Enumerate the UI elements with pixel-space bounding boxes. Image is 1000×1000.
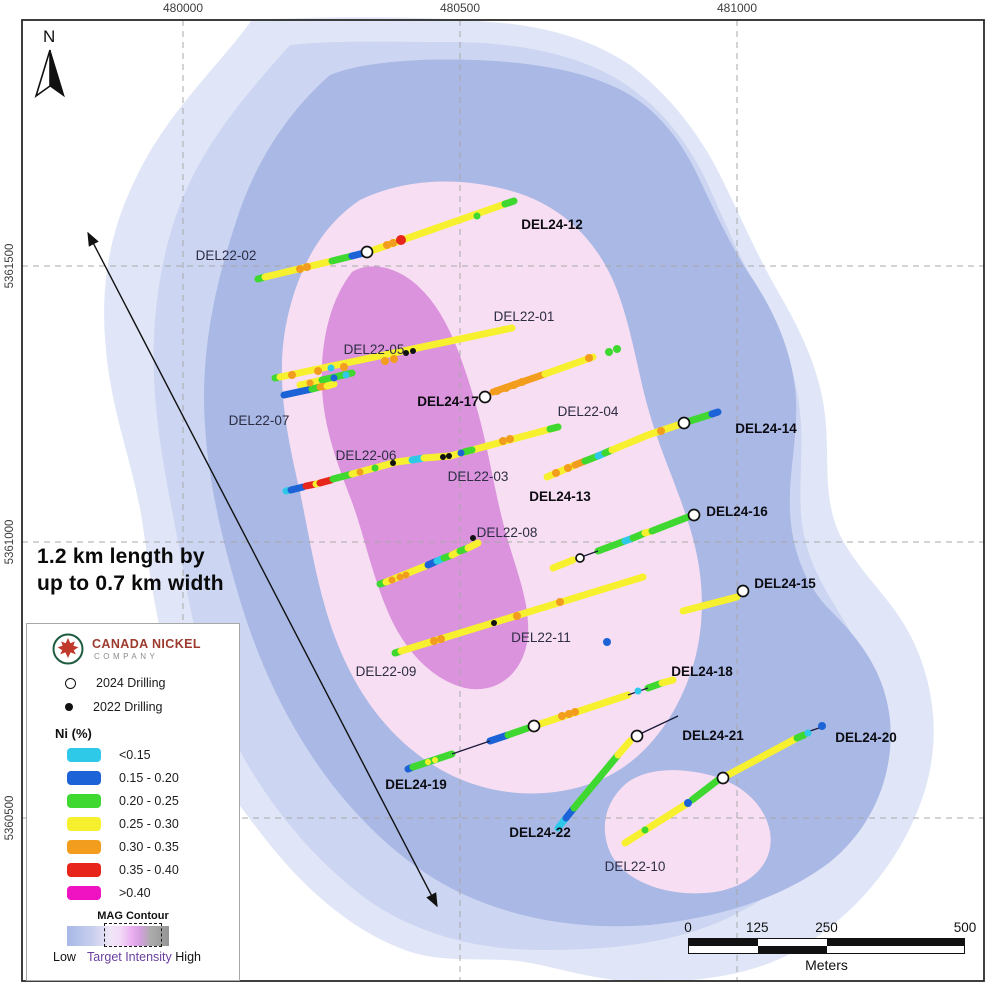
- ni-class-list: <0.150.15 - 0.200.20 - 0.250.25 - 0.300.…: [37, 743, 229, 904]
- mag-gradient: [67, 926, 205, 946]
- scale-bar-segment: [827, 946, 965, 953]
- ni-class-label: 0.20 - 0.25: [119, 794, 179, 808]
- ni-swatch: [67, 794, 101, 808]
- hole-label-del24-13: DEL24-13: [529, 489, 591, 504]
- scale-tick-250: 250: [815, 920, 838, 935]
- assay-dot-orange: [430, 637, 438, 645]
- open-circle-icon: [65, 678, 76, 689]
- collar-2024: [529, 721, 540, 732]
- assay-dot-blue: [684, 799, 692, 807]
- hole-label-del22-01: DEL22-01: [494, 309, 555, 324]
- assay-dot-yellow: [432, 757, 438, 763]
- hole-label-del22-02: DEL22-02: [196, 248, 257, 263]
- assay-dot-orange: [513, 612, 521, 620]
- collar-2022: [410, 348, 416, 354]
- assay-dot-orange: [357, 469, 364, 476]
- assay-dot-orange: [493, 387, 501, 395]
- assay-dot-orange: [397, 574, 404, 581]
- top-tick-480000: 480000: [163, 1, 203, 15]
- ni-swatch: [67, 748, 101, 762]
- assay-dot-orange: [437, 635, 445, 643]
- legend-2024-label: 2024 Drilling: [96, 676, 165, 690]
- collar-2022: [491, 620, 497, 626]
- assay-dot-orange: [381, 357, 389, 365]
- scale-bar-segment: [689, 939, 758, 946]
- dimension-line2: up to 0.7 km width: [37, 570, 224, 597]
- logo-line2: COMPANY: [94, 652, 201, 661]
- mag-target-box: [104, 923, 162, 947]
- hole-label-del24-18: DEL24-18: [671, 664, 733, 679]
- north-letter: N: [43, 27, 55, 46]
- assay-dot-orange: [657, 427, 665, 435]
- assay-dot-yellow: [425, 759, 431, 765]
- legend-2022-drilling: 2022 Drilling: [65, 700, 229, 714]
- hole-label-del24-20: DEL24-20: [835, 730, 897, 745]
- mag-gradient-labels: Low Target Intensity High: [37, 950, 229, 966]
- assay-dot-orange: [303, 263, 311, 271]
- assay-dot-orange: [389, 239, 397, 247]
- drill-trace-segment: [320, 480, 331, 483]
- ni-class-label: 0.30 - 0.35: [119, 840, 179, 854]
- ni-class-row: 0.15 - 0.20: [67, 766, 229, 789]
- hole-label-del24-14: DEL24-14: [735, 421, 797, 436]
- assay-dot-orange: [314, 367, 322, 375]
- collar-2024: [679, 418, 690, 429]
- collar-2024: [689, 510, 700, 521]
- assay-dot-green: [372, 465, 379, 472]
- assay-dot-orange: [556, 598, 564, 606]
- hole-label-del22-08: DEL22-08: [477, 525, 538, 540]
- assay-dot-cyan: [343, 372, 350, 379]
- scale-bar: 0125250500 Meters: [688, 920, 965, 973]
- map-page: DEL22-02DEL24-12DEL22-01DEL22-05DEL24-17…: [0, 0, 1000, 1000]
- drill-trace-segment: [712, 412, 718, 414]
- assay-dot-blue: [818, 722, 826, 730]
- hole-label-del24-16: DEL24-16: [706, 504, 768, 519]
- ni-swatch: [67, 817, 101, 831]
- scale-tick-125: 125: [746, 920, 769, 935]
- assay-dot-cyan: [635, 688, 642, 695]
- mag-low-label: Low: [53, 950, 76, 964]
- ni-class-row: 0.35 - 0.40: [67, 858, 229, 881]
- top-tick-480500: 480500: [440, 1, 480, 15]
- ni-class-row: 0.20 - 0.25: [67, 789, 229, 812]
- hole-label-del24-19: DEL24-19: [385, 777, 447, 792]
- assay-dot-orange: [307, 380, 314, 387]
- assay-dot-orange: [502, 384, 510, 392]
- ni-class-label: 0.25 - 0.30: [119, 817, 179, 831]
- logo-line1: CANADA NICKEL: [92, 637, 201, 651]
- hole-label-del22-06: DEL22-06: [336, 448, 397, 463]
- ni-class-label: <0.15: [119, 748, 151, 762]
- assay-dot-cyan: [328, 365, 335, 372]
- drill-trace-segment: [327, 384, 334, 386]
- legend-panel: CANADA NICKEL COMPANY 2024 Drilling 2022…: [26, 623, 240, 981]
- left-tick-5361500: 5361500: [4, 244, 16, 289]
- assay-dot-orange: [552, 469, 560, 477]
- scale-bar-segment: [827, 939, 965, 946]
- drill-trace-segment: [468, 543, 478, 548]
- assay-dot-orange: [506, 435, 514, 443]
- assay-dot-green: [474, 213, 481, 220]
- left-tick-5361000: 5361000: [4, 520, 16, 565]
- assay-dot-blue: [331, 375, 338, 382]
- hole-label-del22-09: DEL22-09: [356, 664, 417, 679]
- hole-label-del22-04: DEL22-04: [558, 404, 619, 419]
- ni-scale-title: Ni (%): [55, 726, 229, 741]
- hole-label-del24-22: DEL24-22: [509, 825, 571, 840]
- ni-class-label: 0.15 - 0.20: [119, 771, 179, 785]
- assay-dot-orange: [340, 363, 348, 371]
- company-logo: CANADA NICKEL COMPANY: [51, 632, 229, 666]
- collar-2022: [440, 454, 446, 460]
- assay-dot-orange: [585, 354, 593, 362]
- mag-target-label: Target Intensity: [87, 950, 172, 964]
- scale-bar-segment: [689, 946, 758, 953]
- assay-dot-red: [396, 235, 406, 245]
- filled-dot-icon: [65, 703, 73, 711]
- assay-dot-blue: [458, 450, 465, 457]
- collar-2024: [480, 392, 491, 403]
- collar-2024: [632, 731, 643, 742]
- drill-trace-segment: [662, 680, 673, 683]
- ni-class-row: >0.40: [67, 881, 229, 904]
- left-tick-5360500: 5360500: [4, 796, 16, 841]
- ni-class-label: >0.40: [119, 886, 151, 900]
- scale-bar-unit: Meters: [688, 957, 965, 973]
- assay-dot-orange: [296, 265, 304, 273]
- ni-class-label: 0.35 - 0.40: [119, 863, 179, 877]
- hole-label-del24-21: DEL24-21: [682, 728, 744, 743]
- assay-dot-orange: [403, 572, 410, 579]
- assay-dot-orange: [389, 577, 396, 584]
- drill-trace-segment: [291, 487, 303, 490]
- hole-label-del24-12: DEL24-12: [521, 217, 583, 232]
- deposit-dimension-note: 1.2 km length by up to 0.7 km width: [37, 543, 224, 597]
- assay-dot-cyan: [805, 730, 812, 737]
- hole-label-del22-05: DEL22-05: [344, 342, 405, 357]
- scale-bar-segment: [758, 946, 827, 953]
- top-tick-481000: 481000: [717, 1, 757, 15]
- assay-dot-orange: [558, 712, 566, 720]
- hole-label-del24-17: DEL24-17: [417, 394, 479, 409]
- collar-2024: [718, 773, 729, 784]
- drill-trace-segment: [797, 735, 804, 738]
- ni-class-row: <0.15: [67, 743, 229, 766]
- hole-label-del22-07: DEL22-07: [229, 413, 290, 428]
- scale-tick-500: 500: [954, 920, 977, 935]
- ni-swatch: [67, 863, 101, 877]
- scale-tick-0: 0: [684, 920, 692, 935]
- ni-class-row: 0.30 - 0.35: [67, 835, 229, 858]
- collar-2022: [470, 535, 476, 541]
- maple-leaf-logo-icon: [51, 632, 85, 666]
- scale-bar-ticks: 0125250500: [688, 920, 965, 936]
- collar-2024: [362, 247, 373, 258]
- assay-dot-orange: [518, 378, 526, 386]
- assay-dot-orange: [571, 708, 579, 716]
- legend-2024-drilling: 2024 Drilling: [65, 676, 229, 690]
- assay-dot-green: [613, 345, 621, 353]
- drill-trace-segment: [550, 427, 558, 429]
- assay-dot-orange: [499, 437, 507, 445]
- assay-dot-green: [605, 348, 613, 356]
- assay-dot-orange: [564, 464, 572, 472]
- assay-dot-blue: [603, 638, 611, 646]
- north-arrow-icon: N: [26, 24, 74, 104]
- ni-swatch: [67, 840, 101, 854]
- scale-bar-segment: [758, 939, 827, 946]
- north-needle-white: [36, 50, 50, 96]
- mag-contour-title: MAG Contour: [37, 910, 229, 922]
- collar-2022: [446, 453, 452, 459]
- ni-class-row: 0.25 - 0.30: [67, 812, 229, 835]
- assay-dot-green: [642, 827, 649, 834]
- assay-dot-orange: [510, 381, 518, 389]
- north-needle-black: [50, 50, 64, 96]
- scale-bar-graphic: [688, 938, 965, 954]
- legend-2022-label: 2022 Drilling: [93, 700, 162, 714]
- assay-dot-orange: [288, 371, 296, 379]
- ni-swatch: [67, 886, 101, 900]
- ni-swatch: [67, 771, 101, 785]
- collar-2024: [576, 554, 584, 562]
- hole-label-del22-10: DEL22-10: [605, 859, 666, 874]
- hole-label-del24-15: DEL24-15: [754, 576, 816, 591]
- drill-trace-segment: [464, 450, 472, 452]
- collar-2024: [738, 586, 749, 597]
- hole-label-del22-11: DEL22-11: [511, 630, 571, 645]
- drill-trace-segment: [505, 201, 514, 204]
- dimension-line1: 1.2 km length by: [37, 543, 224, 570]
- hole-label-del22-03: DEL22-03: [448, 469, 509, 484]
- mag-high-label: High: [175, 950, 201, 964]
